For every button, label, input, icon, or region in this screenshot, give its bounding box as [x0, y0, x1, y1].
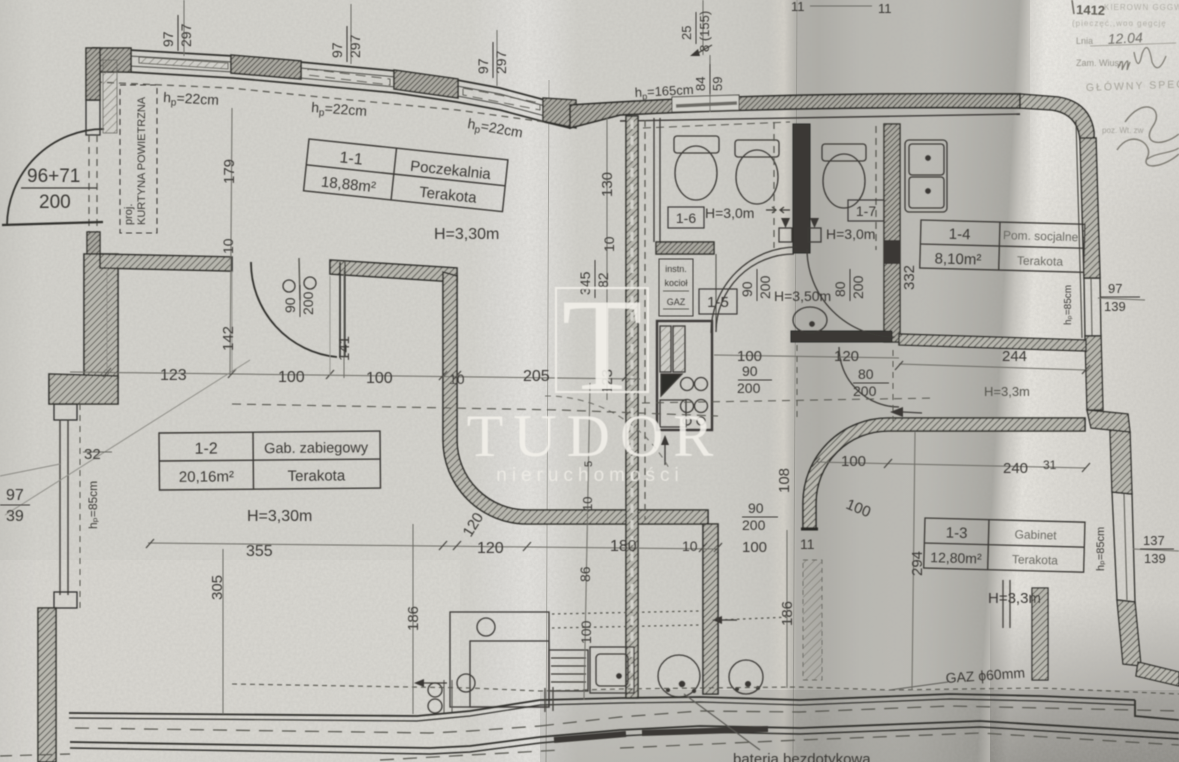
- svg-text:proj.: proj.: [123, 204, 135, 225]
- svg-text:Terakota: Terakota: [288, 467, 346, 485]
- svg-text:90: 90: [748, 500, 764, 516]
- svg-text:80: 80: [858, 366, 874, 382]
- svg-text:H=3,3m: H=3,3m: [988, 590, 1041, 607]
- svg-text:25: 25: [679, 26, 694, 40]
- svg-text:100: 100: [366, 370, 393, 387]
- svg-text:123: 123: [160, 367, 187, 384]
- svg-text:186: 186: [779, 601, 796, 626]
- svg-text:142: 142: [220, 326, 237, 351]
- svg-text:100: 100: [278, 369, 305, 386]
- svg-text:KIEROWN GGGW: KIEROWN GGGW: [1104, 3, 1179, 12]
- svg-text:39: 39: [6, 508, 24, 525]
- svg-text:instn.: instn.: [665, 264, 687, 274]
- svg-text:100: 100: [578, 620, 594, 644]
- svg-text:332: 332: [901, 265, 918, 290]
- svg-text:1-4: 1-4: [949, 226, 971, 244]
- svg-text:97: 97: [160, 31, 176, 47]
- svg-text:97: 97: [329, 42, 345, 58]
- svg-text:139: 139: [1144, 551, 1166, 566]
- svg-text:297: 297: [178, 23, 194, 47]
- svg-text:8 (155): 8 (155): [697, 11, 712, 52]
- svg-text:90: 90: [742, 363, 758, 379]
- svg-text:80: 80: [832, 281, 848, 297]
- svg-text:10: 10: [601, 236, 617, 252]
- svg-text:10: 10: [682, 538, 698, 554]
- svg-text:8,10m²: 8,10m²: [934, 250, 981, 268]
- svg-text:200: 200: [737, 380, 761, 396]
- svg-text:130: 130: [599, 172, 616, 197]
- svg-text:205: 205: [523, 368, 550, 385]
- svg-text:120: 120: [477, 540, 504, 557]
- svg-text:1-1: 1-1: [339, 149, 364, 168]
- svg-text:11: 11: [800, 536, 815, 552]
- svg-text:200: 200: [850, 275, 866, 299]
- svg-text:Terakota: Terakota: [1012, 552, 1059, 567]
- svg-text:179: 179: [221, 159, 238, 184]
- svg-text:200: 200: [757, 275, 773, 299]
- svg-text:186: 186: [405, 606, 422, 631]
- svg-text:97: 97: [475, 58, 491, 74]
- svg-text:139: 139: [1104, 299, 1126, 314]
- svg-text:11: 11: [791, 0, 805, 14]
- svg-text:10: 10: [449, 371, 465, 387]
- svg-text:108: 108: [776, 468, 793, 493]
- svg-text:H=3,0m: H=3,0m: [826, 226, 875, 242]
- svg-text:297: 297: [347, 34, 363, 58]
- svg-text:31: 31: [1043, 458, 1057, 472]
- svg-text:244: 244: [1002, 348, 1027, 365]
- svg-text:10: 10: [220, 238, 236, 254]
- svg-text:KURTYNA POWIETRZNA: KURTYNA POWIETRZNA: [136, 96, 148, 225]
- svg-text:kocioł: kocioł: [664, 278, 687, 288]
- svg-text:11: 11: [878, 1, 892, 16]
- svg-text:nieruchomości: nieruchomości: [496, 465, 684, 486]
- svg-text:355: 355: [246, 543, 273, 560]
- svg-text:59: 59: [710, 77, 725, 91]
- svg-text:(pieczęć,,woo gegcję: (pieczęć,,woo gegcję: [1072, 19, 1167, 28]
- svg-text:H=3,30m: H=3,30m: [247, 508, 312, 525]
- svg-text:90: 90: [739, 281, 755, 297]
- svg-text:297: 297: [493, 50, 509, 74]
- svg-text:Lnia: Lnia: [1076, 36, 1093, 46]
- svg-text:200: 200: [39, 192, 71, 213]
- svg-text:Zam. Wiusr: Zam. Wiusr: [1076, 58, 1122, 68]
- svg-text:12,80m²: 12,80m²: [930, 549, 982, 566]
- svg-text:Gabinet: Gabinet: [1014, 527, 1057, 542]
- svg-text:H=3,50m: H=3,50m: [774, 288, 831, 304]
- svg-text:bateria bezdotykowa: bateria bezdotykowa: [733, 751, 871, 762]
- svg-text:200: 200: [742, 517, 766, 533]
- svg-text:H=3,3m: H=3,3m: [984, 384, 1030, 399]
- svg-text:305: 305: [209, 575, 226, 600]
- svg-text:T: T: [562, 271, 643, 418]
- svg-text:12.04: 12.04: [1107, 29, 1143, 47]
- svg-text:10: 10: [580, 497, 595, 511]
- svg-text:1-2: 1-2: [195, 440, 218, 457]
- svg-text:240: 240: [1003, 460, 1028, 477]
- svg-text:84: 84: [693, 77, 708, 91]
- svg-text:Gab. zabiegowy: Gab. zabiegowy: [264, 440, 369, 457]
- svg-text:200: 200: [853, 383, 877, 399]
- svg-text:1-6: 1-6: [676, 210, 696, 226]
- svg-text:96+71: 96+71: [27, 166, 80, 187]
- svg-text:poz. Wt. zw: poz. Wt. zw: [1102, 126, 1144, 135]
- svg-text:H=3,0m: H=3,0m: [705, 205, 754, 221]
- svg-text:hₚ=85cm: hₚ=85cm: [86, 481, 100, 529]
- svg-text:97: 97: [6, 487, 24, 504]
- svg-text:hₚ=85cm: hₚ=85cm: [1063, 285, 1074, 325]
- svg-text:137: 137: [1143, 533, 1165, 548]
- svg-text:H=3,30m: H=3,30m: [434, 226, 499, 243]
- svg-text:200: 200: [300, 291, 316, 315]
- svg-text:Pom. socjalne: Pom. socjalne: [1003, 228, 1079, 244]
- svg-text:180: 180: [610, 538, 637, 555]
- svg-text:hₚ=85cm: hₚ=85cm: [1095, 527, 1107, 571]
- svg-text:1412: 1412: [1076, 2, 1105, 18]
- svg-text:100: 100: [841, 453, 866, 470]
- svg-text:TUDOR: TUDOR: [467, 403, 724, 469]
- svg-text:141: 141: [336, 336, 353, 361]
- svg-text:GAZ: GAZ: [667, 297, 686, 307]
- svg-text:120: 120: [834, 348, 859, 365]
- svg-text:97: 97: [1108, 281, 1122, 296]
- svg-text:1-5: 1-5: [707, 294, 729, 311]
- svg-text:32: 32: [84, 446, 101, 463]
- svg-text:1-3: 1-3: [946, 525, 968, 543]
- svg-text:20,16m²: 20,16m²: [179, 468, 234, 485]
- svg-text:Terakota: Terakota: [1017, 254, 1064, 269]
- svg-text:90: 90: [282, 297, 298, 313]
- svg-text:100: 100: [742, 539, 767, 556]
- svg-text:1-7: 1-7: [856, 203, 876, 219]
- svg-text:86: 86: [577, 566, 593, 582]
